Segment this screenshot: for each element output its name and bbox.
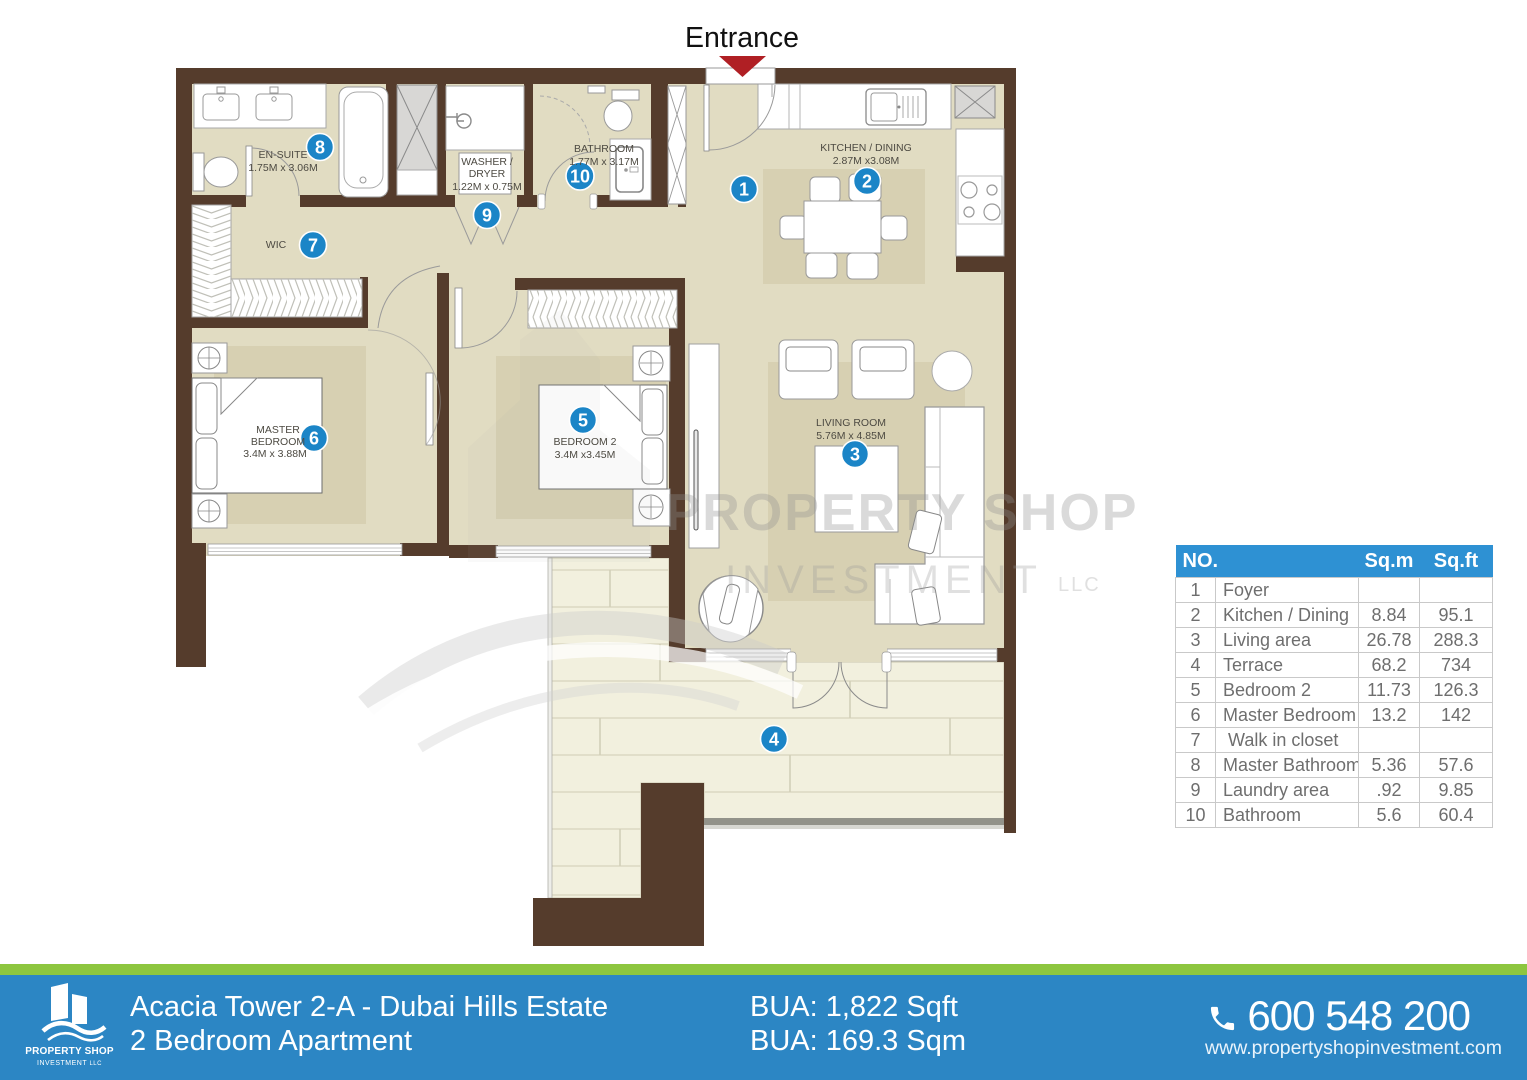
svg-text:WASHER /: WASHER / xyxy=(461,156,513,168)
svg-text:1.77M x 3.17M: 1.77M x 3.17M xyxy=(569,156,638,168)
svg-text:BATHROOM: BATHROOM xyxy=(574,143,634,155)
svg-text:Entrance: Entrance xyxy=(685,22,799,54)
svg-text:1.75M x 3.06M: 1.75M x 3.06M xyxy=(248,162,317,174)
svg-text:9: 9 xyxy=(482,206,492,226)
svg-text:EN-SUITE: EN-SUITE xyxy=(258,149,307,161)
svg-text:5: 5 xyxy=(578,411,588,431)
svg-text:DRYER: DRYER xyxy=(469,168,506,180)
svg-text:6: 6 xyxy=(309,429,319,449)
svg-text:BEDROOM: BEDROOM xyxy=(251,436,305,448)
svg-text:5.76M x 4.85M: 5.76M x 4.85M xyxy=(816,430,885,442)
svg-text:4: 4 xyxy=(769,730,779,750)
svg-text:1.22M x 0.75M: 1.22M x 0.75M xyxy=(452,181,521,193)
svg-text:INVESTMENT: INVESTMENT xyxy=(725,558,1043,602)
svg-text:3: 3 xyxy=(850,445,860,465)
svg-text:7: 7 xyxy=(308,236,318,256)
svg-text:BEDROOM 2: BEDROOM 2 xyxy=(553,436,616,448)
svg-text:KITCHEN / DINING: KITCHEN / DINING xyxy=(820,142,912,154)
svg-text:MASTER: MASTER xyxy=(256,424,300,436)
svg-text:LLC: LLC xyxy=(1058,574,1101,596)
svg-text:3.4M x 3.88M: 3.4M x 3.88M xyxy=(243,448,307,460)
svg-text:8: 8 xyxy=(315,138,325,158)
svg-text:10: 10 xyxy=(570,167,590,187)
svg-text:3.4M x3.45M: 3.4M x3.45M xyxy=(555,449,616,461)
svg-text:WIC: WIC xyxy=(266,239,287,251)
svg-text:PROPERTY SHOP: PROPERTY SHOP xyxy=(666,484,1139,542)
svg-text:LIVING ROOM: LIVING ROOM xyxy=(816,417,886,429)
svg-text:2.87M x3.08M: 2.87M x3.08M xyxy=(833,155,900,167)
svg-text:1: 1 xyxy=(739,180,749,200)
svg-text:2: 2 xyxy=(862,172,872,192)
